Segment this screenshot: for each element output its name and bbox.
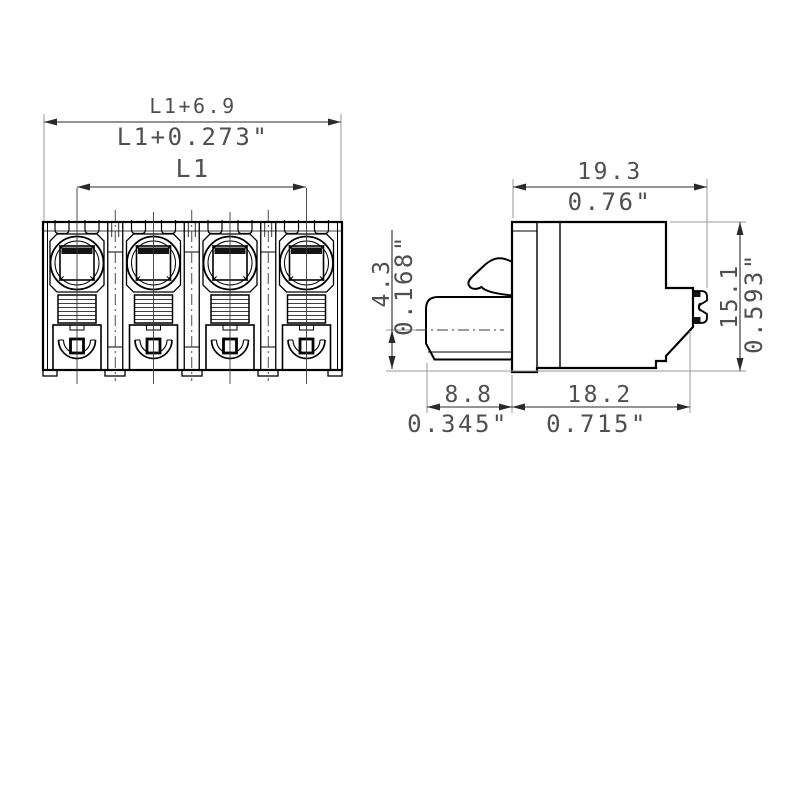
dimensional-drawing-canvas: L1+6.9 L1+0.273" L1 19.3 0.76" 4.3 0.168… [0,0,800,800]
dim-overall-mm-label: L1+6.9 [149,94,236,118]
dim-height-inch-label: 0.593" [740,252,768,354]
dim-width-inch-label: 0.76" [568,188,653,216]
dim-plug-mm-label: 8.8 [444,382,493,408]
front-view [43,188,342,384]
dim-axis-inch-label: 0.168" [390,234,418,336]
dim-overall-inch-label: L1+0.273" [117,123,270,151]
drawing-page: L1+6.9 L1+0.273" L1 19.3 0.76" 4.3 0.168… [0,0,800,800]
dim-depth-mm-label: 18.2 [567,382,632,408]
release-latch [468,258,512,295]
side-view [386,222,707,372]
side-housing-outline [512,222,693,372]
dim-plug-inch-label: 0.345" [407,410,509,438]
retention-clip [693,291,707,323]
wire-entry-barrel [426,297,512,360]
dimensions-front: L1+6.9 L1+0.273" L1 [44,94,341,221]
dim-depth-inch-label: 0.715" [546,410,648,438]
dim-width-mm-label: 19.3 [577,159,642,185]
dim-pitch-label: L1 [175,154,210,183]
